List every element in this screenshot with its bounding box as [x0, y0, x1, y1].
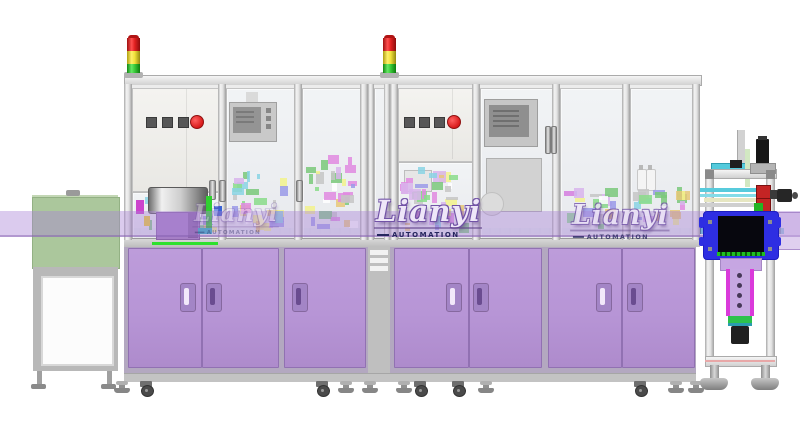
leveling-pad [338, 388, 354, 393]
leveling-pad [396, 388, 412, 393]
module1-button-1 [146, 117, 157, 128]
signal-light-yellow [127, 51, 140, 64]
internal-component [680, 201, 685, 205]
internal-component [341, 195, 354, 204]
station-rail-cyan [700, 188, 764, 192]
cabinet-door-handle-slot [450, 288, 455, 305]
internal-component [429, 173, 437, 179]
cabinet-door-handle-slot [631, 288, 636, 305]
module1-control-door [132, 88, 220, 192]
module1-hmi-screen-text [236, 111, 254, 113]
module2-hmi-screen-text [493, 110, 519, 112]
module1-window-handle [219, 180, 226, 202]
conveyor-highlight-band [0, 211, 800, 237]
leveling-disc [340, 381, 352, 385]
internal-component [324, 192, 336, 201]
internal-component [232, 188, 244, 195]
internal-component [449, 175, 458, 180]
leveling-disc [670, 381, 682, 385]
station-bottom-trim [705, 360, 775, 362]
internal-component [348, 157, 352, 165]
reagent-bottle-cap [648, 165, 652, 170]
press-ram-holes [737, 273, 742, 278]
press-fixture-tab [699, 217, 704, 228]
module1-hmi-keys [266, 108, 271, 113]
press-fixture-tab [699, 237, 704, 246]
internal-component [321, 160, 328, 170]
automation-line-render: Lianyi AUTOMATION Lianyi AUTOMATION Lian… [0, 0, 800, 438]
module1-door-seam [186, 89, 187, 189]
module2-base-skirt [390, 373, 696, 382]
station-drive-knob [792, 192, 798, 199]
infeed-leg [107, 371, 112, 384]
module2-button-3 [434, 117, 445, 128]
internal-component [639, 195, 651, 204]
internal-component [445, 186, 451, 191]
internal-component [420, 206, 427, 209]
press-fixture-bolt [708, 220, 712, 224]
module1-emergency-button [190, 115, 204, 129]
cabinet-door-handle-slot [210, 288, 215, 305]
internal-component [306, 167, 315, 174]
press-tool-green [728, 316, 752, 323]
internal-component [336, 167, 341, 179]
vent-slat [370, 266, 388, 271]
module2-tabletop [390, 238, 700, 247]
caster-hub [419, 389, 422, 392]
internal-component [446, 197, 458, 200]
internal-component [273, 200, 277, 210]
internal-component [406, 178, 413, 183]
signal-light-green [127, 64, 140, 73]
internal-component [610, 201, 616, 210]
internal-component [328, 155, 339, 163]
internal-component [345, 165, 356, 173]
internal-component [439, 175, 444, 178]
internal-component [599, 196, 608, 204]
internal-component [332, 182, 338, 191]
module1-window-right-handle [296, 180, 303, 202]
module2-emergency-button [447, 115, 461, 129]
infeed-leg [37, 371, 42, 384]
station-rail-cream [704, 198, 758, 202]
internal-component [432, 182, 443, 190]
station-motor [756, 139, 769, 166]
press-fixture-opening [718, 216, 764, 253]
station-drive-cylinder [777, 189, 792, 202]
press-ram-edge [750, 269, 754, 316]
cabinet-door-handle-slot [296, 288, 301, 305]
leveling-pad [362, 388, 378, 393]
station-black-block [730, 160, 742, 168]
leveling-disc [480, 381, 492, 385]
press-fixture-tab [776, 217, 781, 228]
internal-component [315, 187, 319, 191]
station-rail-cyan2 [700, 194, 764, 197]
reagent-bottle-cap [639, 165, 643, 170]
leveling-pad [478, 388, 494, 393]
station-foot-stem [710, 365, 719, 378]
infeed-foot-pad [31, 384, 46, 389]
internal-component [309, 174, 312, 184]
station-foot-pad [700, 378, 728, 390]
cabinet-door-handle-slot [600, 288, 605, 305]
bowl-feeder-top [148, 187, 208, 214]
leveling-disc [116, 381, 128, 385]
internal-component [682, 191, 685, 200]
caster-hub [639, 389, 642, 392]
signal-light-yellow [383, 51, 396, 64]
conveyor-band-edge [0, 235, 800, 237]
press-tool-tip [731, 326, 749, 344]
internal-component [280, 186, 289, 196]
module2-button-1 [404, 117, 415, 128]
internal-component [574, 188, 584, 198]
leveling-pad [114, 388, 130, 393]
leveling-disc [364, 381, 376, 385]
internal-component [418, 167, 424, 174]
internal-component [234, 178, 243, 184]
internal-component [254, 198, 267, 205]
infeed-knob [66, 190, 80, 196]
station-foot-stem [761, 365, 770, 378]
enclosure-top-subrail [124, 85, 700, 89]
cabinet-door-handle-slot [184, 288, 189, 305]
station-motor-cap [758, 136, 767, 140]
leveling-pad [668, 388, 684, 393]
module2-window-handle-b [551, 126, 557, 154]
internal-component [342, 179, 347, 186]
cabinet-door-handle-slot [477, 288, 482, 305]
internal-component [409, 189, 421, 199]
internal-component [661, 195, 667, 206]
caster-hub [457, 389, 460, 392]
leveling-disc [398, 381, 410, 385]
internal-component [424, 195, 430, 201]
module1-button-2 [162, 117, 173, 128]
signal-light-green [383, 64, 396, 73]
internal-component [351, 184, 354, 188]
leveling-pad [688, 388, 704, 393]
internal-component [247, 171, 250, 182]
feeder-outfeed-line [152, 242, 218, 245]
internal-component [575, 198, 584, 201]
infeed-cabinet-panel [41, 276, 114, 366]
vent-slat [370, 250, 388, 255]
internal-component [432, 192, 437, 204]
station-corner-plate [705, 170, 714, 179]
caster-hub [145, 389, 148, 392]
press-ram-edge [726, 269, 730, 316]
internal-component [331, 171, 335, 180]
internal-component [316, 171, 320, 174]
station-corner-plate [766, 170, 775, 179]
station-foot-pad [751, 378, 779, 390]
internal-component [257, 174, 260, 179]
press-fixture-led-strip [717, 252, 765, 256]
internal-component [593, 199, 599, 207]
signal-light-red [127, 38, 140, 51]
internal-component [415, 184, 428, 187]
internal-component [246, 189, 259, 195]
station-coupler [770, 190, 777, 199]
module1-button-3 [178, 117, 189, 128]
signal-light-red [383, 38, 396, 51]
caster-hub [321, 389, 324, 392]
station-gearbox-red-upper [756, 185, 771, 199]
press-fixture-tab [776, 237, 781, 246]
station-rail-gray [700, 203, 762, 207]
vent-slat [370, 258, 388, 263]
module2-button-2 [419, 117, 430, 128]
